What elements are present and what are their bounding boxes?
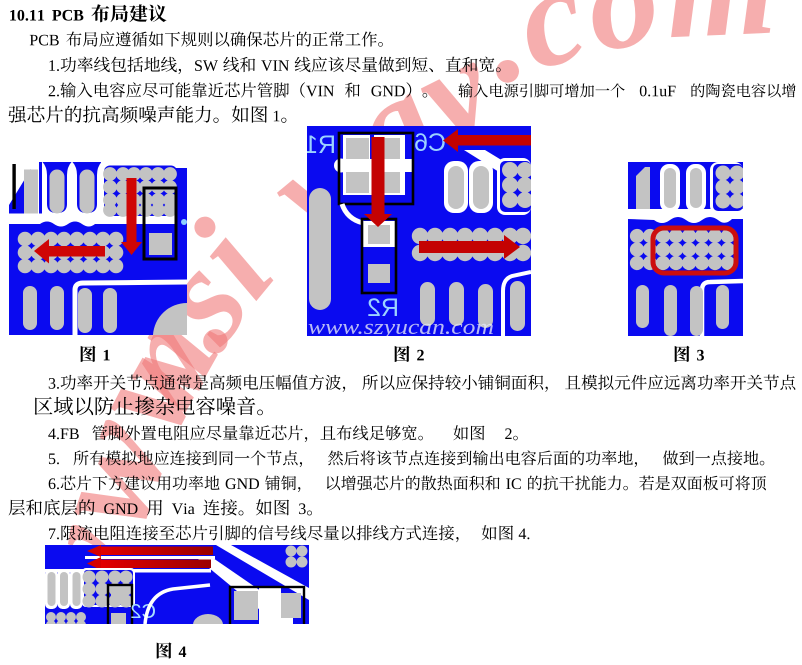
svg-text:C6: C6 xyxy=(414,129,446,157)
svg-text:www.szyucan.com: www.szyucan.com xyxy=(308,314,494,336)
svg-text:R1: R1 xyxy=(307,131,336,159)
